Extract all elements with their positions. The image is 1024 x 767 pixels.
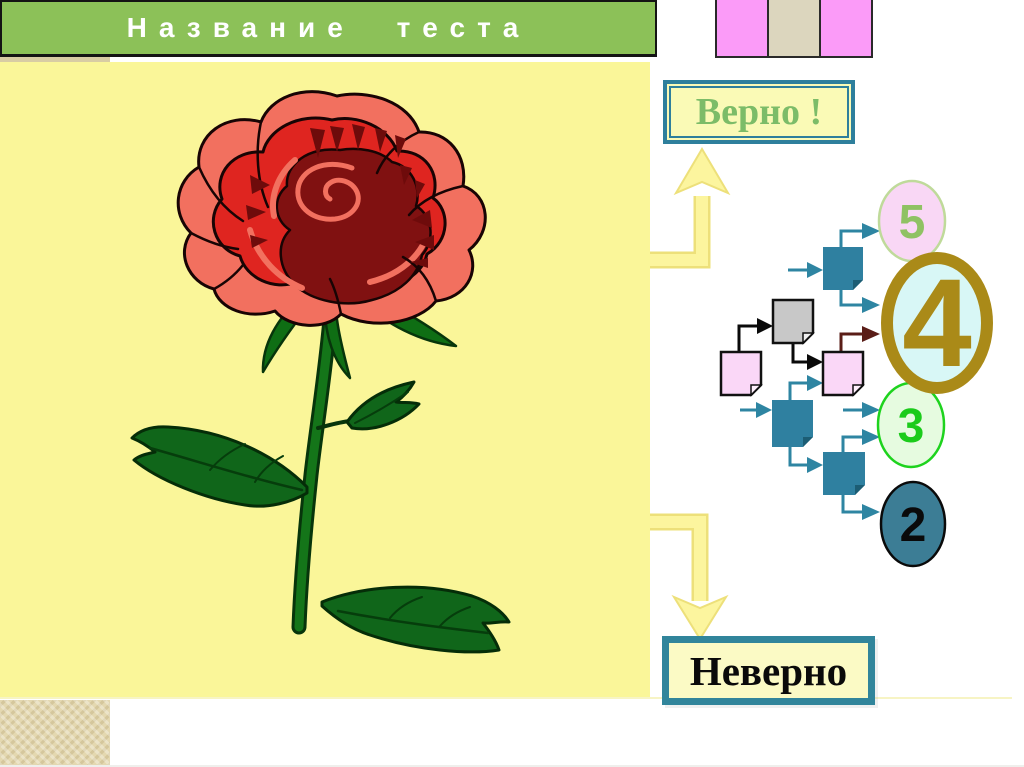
correct-answer-inner-frame: Верно ! (669, 86, 849, 138)
deco-strip (717, 0, 873, 58)
rose-leaf-upper-right (347, 382, 419, 429)
doc-node-teal-bottom (823, 452, 865, 495)
svg-text:3: 3 (898, 400, 925, 453)
slide-title-bar: Название теста (0, 0, 657, 57)
svg-text:2: 2 (900, 499, 927, 552)
flowchart-nodes (721, 247, 865, 495)
doc-node-pink-left (721, 352, 761, 395)
navigation-diagram: 5 3 2 4 (640, 140, 1024, 660)
tan-accent-bottom (0, 700, 110, 766)
score-circle-2: 2 (881, 482, 945, 566)
doc-node-teal-middle (772, 400, 813, 447)
rose-illustration (0, 0, 650, 697)
svg-text:4: 4 (902, 254, 972, 393)
incorrect-answer-label: Неверно (690, 647, 847, 695)
svg-text:5: 5 (899, 196, 926, 249)
doc-node-teal-top (823, 247, 863, 290)
rose-leaf-left (132, 427, 307, 506)
deco-square-beige (767, 0, 821, 58)
correct-arrow (650, 149, 728, 260)
incorrect-answer-button[interactable]: Неверно (662, 636, 875, 705)
score-circle-4: 4 (887, 254, 987, 393)
incorrect-arrow (650, 522, 726, 639)
deco-square-pink-left (715, 0, 769, 58)
correct-answer-label: Верно ! (696, 90, 822, 134)
deco-square-pink-right (819, 0, 873, 58)
score-circle-3: 3 (878, 383, 944, 467)
correct-answer-button[interactable]: Верно ! (663, 80, 855, 144)
doc-node-pink-right (823, 352, 863, 395)
rose-leaf-lower-right (322, 587, 509, 652)
rose-clipart (132, 92, 509, 652)
score-circle-5: 5 (879, 181, 945, 261)
slide-title: Название теста (127, 12, 531, 44)
doc-node-gray (773, 300, 813, 343)
test-slide: Название теста (0, 0, 1024, 767)
